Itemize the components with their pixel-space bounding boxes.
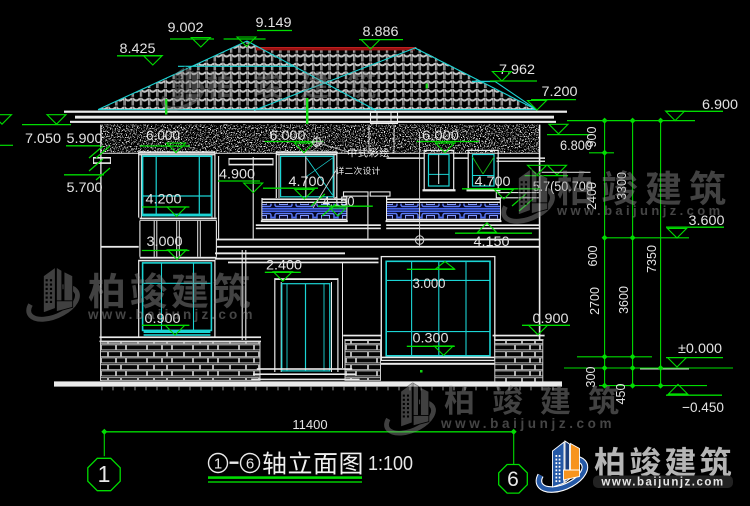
- svg-text:4.900: 4.900: [219, 166, 255, 182]
- svg-text:6.000: 6.000: [422, 127, 459, 143]
- svg-text:2700: 2700: [588, 287, 602, 315]
- svg-text:±0.000: ±0.000: [678, 340, 722, 356]
- svg-text:7.200: 7.200: [542, 83, 578, 99]
- svg-text:7.050: 7.050: [25, 130, 61, 146]
- svg-text:7.962: 7.962: [499, 61, 535, 77]
- svg-text:450: 450: [614, 384, 628, 405]
- svg-text:www.baijunjz.com: www.baijunjz.com: [440, 416, 615, 431]
- svg-text:1: 1: [214, 456, 222, 473]
- svg-text:4.150: 4.150: [474, 233, 510, 249]
- svg-text:2.400: 2.400: [266, 257, 302, 273]
- svg-text:0.300: 0.300: [413, 330, 449, 346]
- svg-text:4.200: 4.200: [146, 191, 182, 207]
- svg-text:www.baijunjz.com: www.baijunjz.com: [556, 203, 724, 218]
- svg-text:9.149: 9.149: [256, 14, 292, 30]
- svg-text:0.900: 0.900: [533, 310, 569, 326]
- svg-text:8.886: 8.886: [363, 23, 399, 39]
- svg-text:www.baijunjz.com: www.baijunjz.com: [87, 307, 256, 322]
- svg-text:600: 600: [586, 246, 600, 267]
- svg-text:300: 300: [584, 367, 598, 388]
- svg-text:9.002: 9.002: [168, 19, 204, 35]
- svg-text:−0.450: −0.450: [682, 399, 724, 415]
- svg-text:3.000: 3.000: [413, 275, 446, 291]
- svg-text:6.000: 6.000: [146, 127, 180, 143]
- svg-text:1: 1: [98, 461, 111, 487]
- svg-text:3.000: 3.000: [147, 233, 183, 249]
- svg-text:6: 6: [507, 468, 519, 491]
- svg-text:6.000: 6.000: [270, 127, 306, 143]
- svg-text:6.900: 6.900: [702, 96, 738, 112]
- svg-text:8.425: 8.425: [120, 40, 156, 56]
- svg-text:www.baijunjz.com: www.baijunjz.com: [600, 477, 724, 489]
- svg-text:4.700: 4.700: [475, 173, 511, 189]
- svg-text:4.700: 4.700: [289, 173, 325, 189]
- svg-text:900: 900: [585, 127, 599, 148]
- svg-text:1:100: 1:100: [368, 453, 413, 475]
- svg-text:5.700: 5.700: [67, 179, 103, 195]
- svg-text:5.900: 5.900: [67, 130, 103, 146]
- svg-text:3600: 3600: [617, 286, 631, 314]
- svg-text:11400: 11400: [292, 417, 327, 432]
- svg-text:7350: 7350: [645, 245, 659, 273]
- svg-text:6: 6: [246, 456, 254, 473]
